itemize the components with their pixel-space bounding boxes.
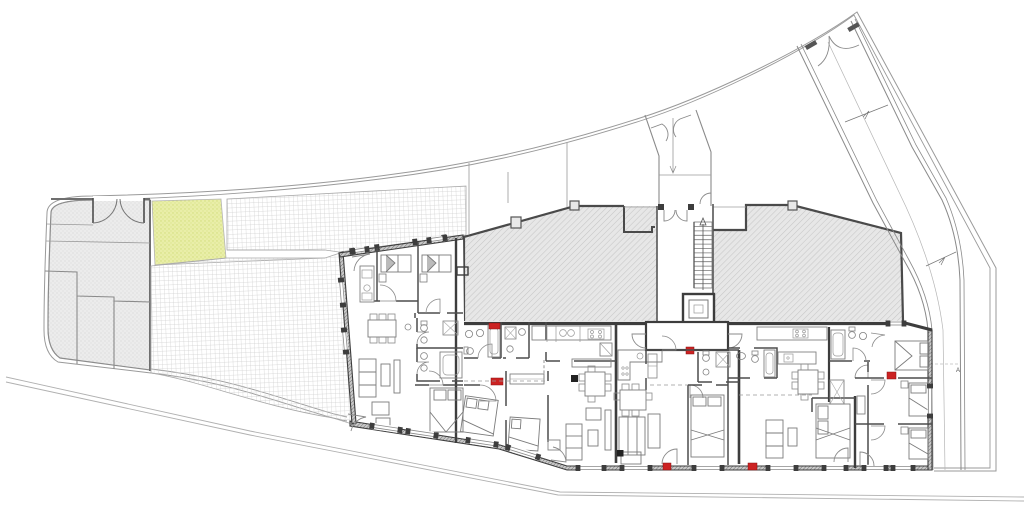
- svg-text:A: A: [956, 368, 960, 374]
